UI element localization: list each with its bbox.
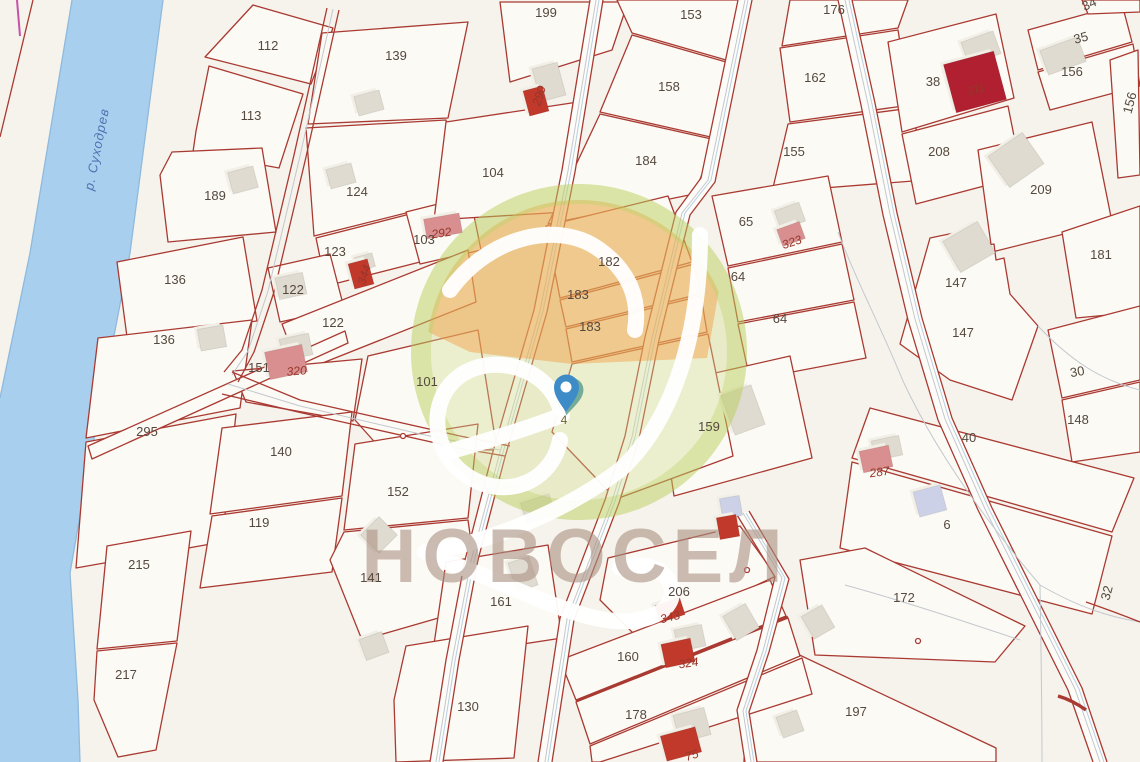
parcel-number-label: 101 — [416, 374, 438, 389]
parcel-number-label: 136 — [153, 332, 175, 347]
parcel-number-label: 197 — [845, 704, 867, 719]
parcel-number-label: 151 — [248, 360, 270, 375]
parcel-number-label: 172 — [893, 590, 915, 605]
parcel-number-label: 38 — [926, 74, 940, 89]
parcel-number-label: 122 — [322, 315, 344, 330]
parcel-number-label: 113 — [241, 108, 262, 123]
west-bank-boundary-line — [0, 0, 33, 137]
parcel-number-label: 178 — [625, 707, 647, 722]
parcel-number-label: 155 — [783, 144, 805, 159]
parcel-number-label: 209 — [1030, 182, 1052, 197]
magenta-boundary-line — [17, 0, 20, 36]
parcel-number-label: 184 — [635, 153, 657, 168]
parcel-number-label: 119 — [249, 515, 270, 530]
parcel-number-label: 30 — [1069, 363, 1086, 380]
parcel-number-label: 147 — [945, 275, 967, 290]
building-number-label: 292 — [430, 225, 453, 242]
parcel-number-label: 104 — [482, 165, 504, 180]
parcel-number-label: 159 — [698, 419, 720, 434]
marker-number-label: 4 — [561, 413, 568, 427]
parcel-number-label: 65 — [739, 214, 753, 229]
parcel-number-label: 153 — [680, 7, 702, 22]
parcel-number-label: 160 — [617, 649, 639, 664]
parcel-number-label: 147 — [952, 325, 974, 340]
parcel-number-label: 199 — [535, 5, 557, 20]
parcel-number-label: 182 — [598, 254, 620, 269]
parcel-number-label: 141 — [360, 570, 382, 585]
pin-hole-icon — [561, 382, 572, 393]
parcel[interactable] — [1048, 306, 1140, 398]
parcel[interactable] — [500, 2, 628, 82]
parcel-number-label: 183 — [567, 287, 589, 302]
parcel-number-label: 152 — [387, 484, 409, 499]
parcel-number-label: 215 — [128, 557, 150, 572]
parcel[interactable] — [210, 412, 352, 514]
parcel-number-label: 139 — [385, 48, 407, 63]
parcel-number-label: 161 — [490, 594, 512, 609]
cadastral-map[interactable]: НОВОСЕЛ 11211318913613629521521713912412… — [0, 0, 1140, 762]
parcel-number-label: 183 — [579, 319, 601, 334]
parcel-number-label: 189 — [204, 188, 226, 203]
parcel[interactable] — [308, 22, 468, 124]
parcel-number-label: 64 — [731, 269, 745, 284]
parcel-number-label: 208 — [928, 144, 950, 159]
parcel-number-label: 176 — [823, 2, 845, 17]
parcel-number-label: 181 — [1090, 247, 1112, 262]
parcel[interactable] — [1110, 50, 1140, 178]
parcel-number-label: 136 — [164, 272, 186, 287]
parcel-number-label: 156 — [1061, 64, 1083, 79]
parcel-number-label: 122 — [282, 282, 304, 297]
parcel[interactable] — [94, 643, 177, 757]
parcel-number-label: 148 — [1067, 412, 1089, 427]
building-number-label: 320 — [286, 363, 307, 379]
parcel-number-label: 123 — [324, 244, 346, 259]
parcel-number-label: 158 — [658, 79, 680, 94]
parcel-number-label: 32 — [1098, 584, 1116, 602]
parcel-number-label: 64 — [773, 311, 787, 326]
parcel-number-label: 40 — [962, 430, 976, 445]
parcel-number-label: 162 — [804, 70, 826, 85]
parcel-number-label: 295 — [136, 424, 158, 439]
parcel-number-label: 206 — [668, 584, 690, 599]
parcel[interactable] — [97, 531, 191, 649]
parcel-number-label: 6 — [943, 517, 950, 532]
parcel-number-label: 140 — [270, 444, 292, 459]
brand-watermark-text: НОВОСЕЛ — [361, 514, 788, 599]
parcel-number-label: 130 — [457, 699, 479, 714]
parcel-number-label: 217 — [115, 667, 137, 682]
building-number-label: 324 — [678, 655, 700, 672]
parcel-number-label: 112 — [258, 38, 279, 53]
building — [194, 322, 227, 352]
parcel-number-label: 124 — [346, 184, 368, 199]
